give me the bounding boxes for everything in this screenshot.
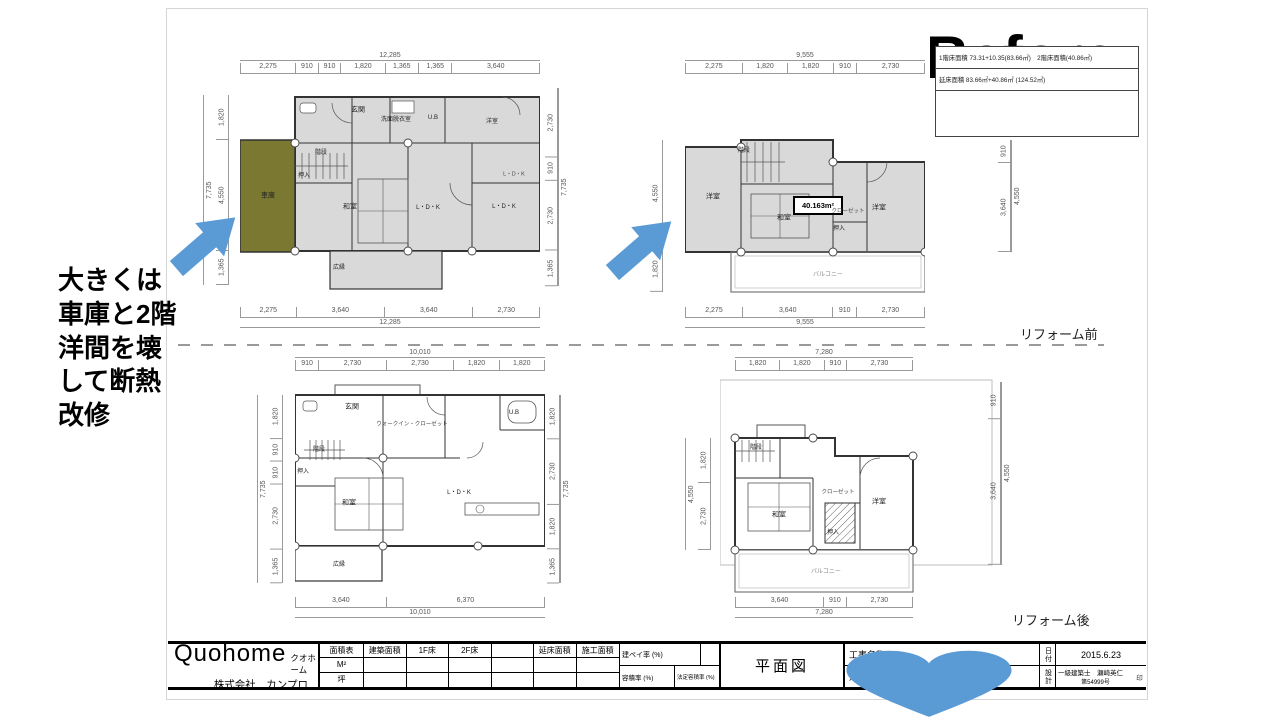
floor-plan-1f-before-drawing: [240, 83, 540, 293]
area-table-cell: [534, 658, 577, 672]
area-table-cell: [492, 658, 535, 672]
dim-segment: 2,730: [318, 360, 386, 371]
area-table-header: 建築面積: [364, 644, 407, 658]
dim-segment: 910: [545, 157, 557, 181]
dim-segment: 1,820: [787, 63, 833, 74]
dim-segment: 910: [824, 360, 847, 371]
p3-right-dims: 1,8202,7301,8201,365: [547, 395, 560, 583]
dim-segment: 2,730: [386, 360, 454, 371]
kenpei-label: 建ペイ率 (%): [620, 644, 701, 665]
dim-segment: 3,640: [988, 419, 1000, 565]
p4-bottom-total: 7,280: [735, 609, 913, 618]
area-table-row-label: 坪: [320, 673, 364, 687]
dim-segment: 3,640: [742, 307, 833, 318]
p2-right-total: 4,550: [1011, 140, 1023, 252]
ratio-cell: 建ペイ率 (%) 容積率 (%) 法定容積率 (%): [620, 644, 720, 687]
dim-segment: 2,730: [698, 483, 710, 550]
company-cell: Quohome クオホーム 株式会社 カンプロ: [168, 644, 320, 687]
room-label-balcony: バルコニー: [811, 569, 841, 575]
p4-right-total: 4,550: [1001, 382, 1013, 565]
dim-segment: 1,820: [270, 395, 282, 439]
p2-top-dims: 2,2751,8201,8209102,730: [685, 63, 925, 74]
p4-bottom-dims: 3,6409102,730: [735, 597, 913, 608]
p1-bottom-total: 12,285: [240, 319, 540, 328]
dim-segment: 3,640: [451, 63, 540, 74]
dim-segment: 2,730: [846, 597, 913, 608]
room-label-closet: クローゼット: [831, 209, 864, 215]
dim-segment: 2,275: [240, 307, 296, 318]
drawing-title: 平面図: [720, 644, 845, 687]
dim-segment: 3,640: [384, 307, 472, 318]
area-table-cell: [534, 673, 577, 687]
area-table-cell: [364, 673, 407, 687]
p2-top-total: 9,555: [685, 52, 925, 61]
dim-segment: 2,730: [846, 360, 913, 371]
dim-segment: 2,275: [685, 307, 742, 318]
reform-before-label: リフォーム前: [1020, 324, 1098, 343]
dim-segment: 910: [998, 140, 1010, 163]
toilet-fixture: [303, 401, 317, 411]
area-summary-row2: 延床面積 83.66㎡+40.86㎡ (124.52㎡): [936, 69, 1138, 91]
dim-segment: 2,275: [240, 63, 295, 74]
p3-bottom-total: 10,010: [295, 609, 545, 618]
dim-segment: 1,820: [216, 95, 228, 140]
room-label-ldk: L・D・K: [492, 204, 516, 210]
p1-top-total: 12,285: [240, 52, 540, 61]
dim-segment: 910: [318, 63, 341, 74]
room-label-oshiire: 押入: [833, 226, 845, 232]
p1-right-dims: 2,7309102,7301,365: [545, 88, 558, 286]
dim-segment: 910: [270, 439, 282, 462]
sink-fixture: [392, 101, 414, 113]
dim-segment: 2,730: [270, 484, 282, 550]
p4-top-dims: 1,8201,8209102,730: [735, 360, 913, 371]
p2-right-dims: 9103,640: [998, 140, 1011, 252]
room-label-washitsu: 和室: [777, 215, 791, 222]
room-label-closet: 押入: [298, 173, 310, 179]
slide: Before 大きくは 車庫と2階 洋間を壊 して断熱 改修 1階床面積 73.…: [0, 0, 1280, 720]
area-table-header: 施工面積: [577, 644, 620, 658]
area-table-header: [492, 644, 535, 658]
p3-left-total: 7,735: [257, 395, 269, 583]
room-label-ldk: L・D・K: [503, 172, 525, 178]
dim-segment: 7,735: [258, 395, 269, 583]
date-value: 2015.6.23: [1056, 644, 1146, 665]
floor-plan-1f-after-drawing: [295, 383, 545, 588]
p2-bottom-dims: 2,2753,6409102,730: [685, 307, 925, 318]
heart-icon: [843, 650, 1015, 720]
room-label-garage: 車庫: [261, 193, 275, 200]
p4-left-dims: 1,8202,730: [698, 438, 711, 550]
room-label-entrance: 玄関: [351, 107, 365, 114]
license-number: 第54999号: [1058, 677, 1133, 686]
room-label-stairs: 階段: [313, 447, 325, 453]
room-label-bedroom: 洋室: [486, 119, 498, 125]
room-label-washitsu: 和室: [343, 204, 357, 211]
dim-segment: 2,730: [547, 439, 559, 505]
hotei-label: 法定容積率 (%): [675, 666, 719, 687]
before-after-divider: [178, 344, 1104, 346]
room-label-stairs: 階段: [315, 150, 327, 156]
area-table-header: 面積表: [320, 644, 364, 658]
toilet-fixture: [300, 103, 316, 113]
area-table-cell: [577, 658, 620, 672]
room-label-yoshitsu: 洋室: [872, 499, 886, 506]
dim-segment: 3,640: [295, 597, 386, 608]
date-label: 日付: [1040, 644, 1056, 665]
room-label-closet: クローゼット: [821, 490, 854, 496]
date-design-cell: 日付 2015.6.23 設計 一級建築士 瀬崎英仁 第54999号 印: [1040, 644, 1146, 687]
architect-name: 一級建築士 瀬崎英仁: [1058, 667, 1133, 677]
dim-segment: 910: [295, 360, 318, 371]
company-logo: Quohome: [174, 640, 286, 668]
room-label-ldk: L・D・K: [447, 490, 471, 496]
company-kana: クオホーム: [290, 652, 318, 676]
room-label-stairs: 階段: [738, 148, 750, 154]
room-label-washitsu: 和室: [772, 512, 786, 519]
dim-segment: 910: [270, 462, 282, 485]
area-summary-row1: 1階床面積 73.31+10.35(83.66㎡) 2階床面積(40.86㎡): [936, 47, 1138, 69]
dim-segment: 4,550: [686, 438, 697, 550]
dim-segment: 1,820: [698, 438, 710, 483]
dim-segment: 910: [823, 597, 846, 608]
room-label-bath: U.B: [509, 410, 519, 416]
room-label-yoshitsu: 洋室: [706, 194, 720, 201]
dim-segment: 6,370: [386, 597, 545, 608]
dim-segment: 1,365: [385, 63, 418, 74]
dim-segment: 1,365: [418, 63, 451, 74]
dim-segment: 1,365: [545, 251, 557, 286]
room-label-ldk: L・D・K: [416, 205, 440, 211]
p4-top-total: 7,280: [735, 349, 913, 358]
floor-plan-2f-after-drawing: [720, 378, 995, 598]
designer-info: 一級建築士 瀬崎英仁 第54999号: [1056, 666, 1133, 687]
p4-right-dims: 9103,640: [988, 382, 1001, 565]
area-table-row-label: M²: [320, 658, 364, 672]
dim-segment: 2,730: [545, 181, 557, 250]
p3-right-total: 7,735: [560, 395, 572, 583]
note-line: して断熱: [58, 365, 176, 399]
room-label-veranda: 広縁: [333, 265, 345, 271]
dim-segment: 7,735: [561, 395, 572, 583]
area-table-cell: [407, 673, 450, 687]
company-sub: 株式会社 カンプロ: [168, 677, 318, 692]
dim-segment: 7,735: [559, 88, 570, 286]
room-label-veranda: 広縁: [333, 562, 345, 568]
p3-bottom-dims: 3,6406,370: [295, 597, 545, 608]
room-label-bath: U.B: [428, 115, 438, 121]
area-table: 面積表 建築面積 1F床 2F床 延床面積 施工面積 M² 坪: [320, 644, 620, 687]
dim-segment: 3,640: [296, 307, 384, 318]
arrow-to-garage-icon: [158, 196, 250, 288]
area-table-cell: [449, 673, 492, 687]
dim-segment: 1,820: [742, 63, 788, 74]
room-label-washitsu: 和室: [342, 500, 356, 507]
dim-segment: 3,640: [735, 597, 823, 608]
floor-plan-2f-before-drawing: [685, 138, 925, 298]
dim-segment: 1,820: [499, 360, 545, 371]
area-table-cell: [449, 658, 492, 672]
p1-right-total: 7,735: [558, 88, 570, 286]
dim-segment: 2,730: [545, 88, 557, 157]
dim-segment: 4,550: [1002, 382, 1013, 565]
dim-segment: 4,550: [1012, 140, 1023, 252]
note-line: 車庫と2階: [58, 298, 176, 332]
dim-segment: 1,820: [340, 63, 384, 74]
dim-segment: 1,820: [547, 395, 559, 439]
design-label: 設計: [1040, 666, 1056, 687]
room-label-oshiire: 押入: [827, 530, 839, 536]
dim-segment: 910: [295, 63, 318, 74]
p2-bottom-total: 9,555: [685, 319, 925, 328]
annotation-note: 大きくは 車庫と2階 洋間を壊 して断熱 改修: [58, 264, 176, 433]
reform-after-label: リフォーム後: [1012, 610, 1090, 629]
dim-segment: 910: [833, 63, 856, 74]
p1-bottom-dims: 2,2753,6403,6402,730: [240, 307, 540, 318]
dim-segment: 1,820: [547, 505, 559, 549]
yoseki-label: 容積率 (%): [620, 666, 675, 687]
dim-segment: 1,365: [270, 550, 282, 583]
removed-closet-hatch: [825, 503, 855, 543]
dim-segment: 3,640: [998, 163, 1010, 252]
p1-top-dims: 2,2759109101,8201,3651,3653,640: [240, 63, 540, 74]
note-line: 改修: [58, 399, 176, 433]
area-summary-box: 1階床面積 73.31+10.35(83.66㎡) 2階床面積(40.86㎡) …: [935, 46, 1139, 137]
dim-segment: 910: [832, 307, 855, 318]
area-table-cell: [492, 673, 535, 687]
dim-segment: 1,820: [453, 360, 498, 371]
room-label-yoshitsu: 洋室: [872, 205, 886, 212]
dim-segment: 2,730: [856, 63, 925, 74]
room-label-washroom: 洗面脱衣室: [381, 117, 411, 123]
dim-segment: 2,275: [685, 63, 742, 74]
area-table-cell: [577, 673, 620, 687]
area-table-cell: [364, 658, 407, 672]
dim-segment: 2,730: [856, 307, 925, 318]
p3-top-total: 10,010: [295, 349, 545, 358]
note-line: 洋間を壊: [58, 332, 176, 366]
dim-segment: 1,820: [779, 360, 823, 371]
room-label-entrance: 玄関: [345, 404, 359, 411]
seal-mark: 印: [1133, 666, 1146, 687]
arrow-to-2f-plan-icon: [594, 200, 686, 292]
area-table-header: 2F床: [449, 644, 492, 658]
area-table-cell: [407, 658, 450, 672]
room-label-stairs: 階段: [750, 445, 762, 451]
dim-segment: 1,365: [547, 550, 559, 583]
p3-top-dims: 9102,7302,7301,8201,820: [295, 360, 545, 371]
p4-left-total: 4,550: [685, 438, 697, 550]
room-label-balcony: バルコニー: [813, 272, 843, 278]
room-label-oshiire: 押入: [297, 469, 309, 475]
dim-segment: 2,730: [472, 307, 540, 318]
p3-left-dims: 1,8209109102,7301,365: [270, 395, 283, 583]
dim-segment: 1,820: [735, 360, 779, 371]
area-table-header: 延床面積: [534, 644, 577, 658]
dim-segment: 910: [988, 382, 1000, 419]
area-table-header: 1F床: [407, 644, 450, 658]
room-label-wic: ウォークイン・クローゼット: [376, 422, 448, 428]
